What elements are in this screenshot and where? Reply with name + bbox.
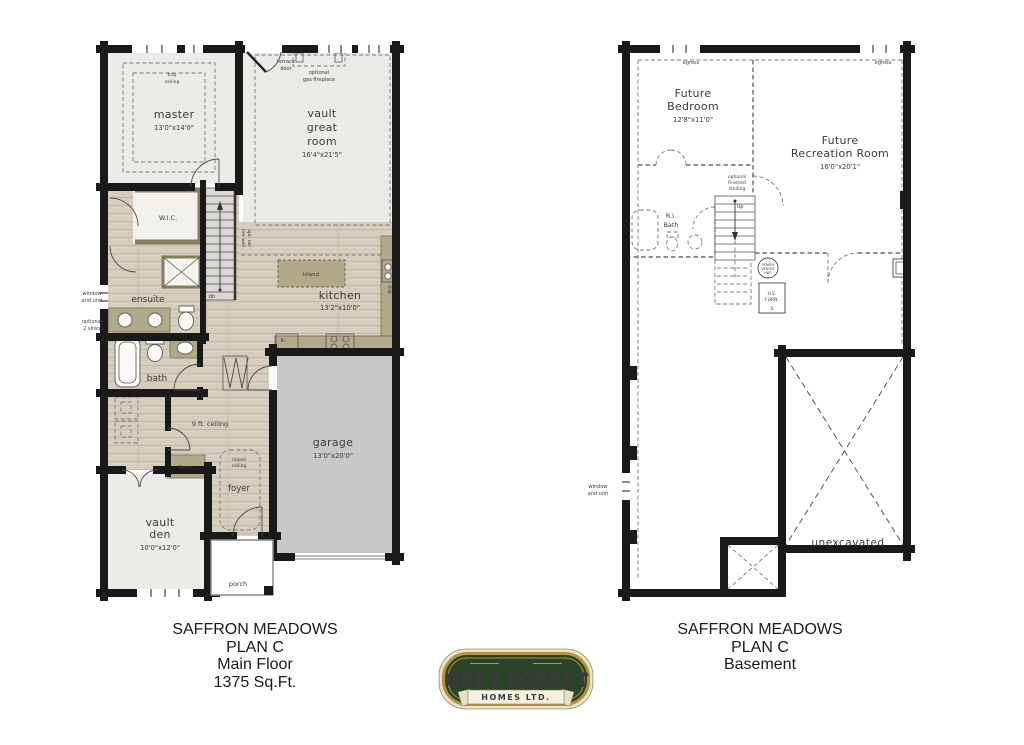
rec-door-dashed [828,253,858,283]
ensuite-label: ensuite [131,295,165,305]
future-bedroom-label-1: Future [675,87,712,100]
porch-label: porch [229,580,247,588]
main-floor-title-block: SAFFRON MEADOWS PLAN C Main Floor 1375 S… [148,621,362,691]
terrace-door-opening [245,45,282,53]
stairs-down [205,188,235,300]
ri-toilet-tank [667,232,678,237]
stairs-dn-label: dn [209,294,216,300]
opt-sinks-note-2: 2 sinks [83,326,101,332]
wall-pilaster-2 [630,446,637,460]
hwt-label-3: HWT [764,271,772,275]
garage-dims: 13'0"x20'0" [313,452,353,460]
unexcavated-x [786,357,903,545]
ceiling-9ft-note: 9 ft. ceiling [192,420,228,428]
ensuite-toilet-tank [179,306,194,312]
bath-label: bath [147,374,167,384]
master-label: master [154,108,195,121]
opt-sinks-note-1: optional [82,319,102,325]
basement-porch-walls [724,541,782,593]
wic-label: W.I.C. [159,214,177,222]
bath-sink [177,342,193,354]
dishwasher-label: D.W. [387,285,392,294]
raised-ceiling-note-2: ceiling [232,463,247,469]
terrace-door-label-2: door [280,66,292,72]
landing-note-2: finished [728,180,746,186]
landing-treads [717,268,749,292]
ri-sink [688,235,702,249]
rec-room-dims: 16'0"x20'1" [820,163,860,171]
rail-note-2: opt. rail [246,229,252,246]
logo-name-text: GREY FOREST [444,670,587,691]
ensuite-toilet [179,312,194,330]
tray-ceiling-label-2: ceiling [165,79,180,85]
terrace-door-label-1: terrace [277,59,295,65]
mechanical [758,258,909,313]
bath-door-swing-dashed [693,207,715,229]
logo-est-text: Est 1990 [498,660,533,669]
raised-ceiling-note-1: raised [232,457,246,463]
landing-outline [715,260,751,304]
stairs-up [715,196,755,304]
porch-post [264,586,273,595]
foyer-label: foyer [228,484,250,494]
wall-pilaster-3 [630,530,637,544]
bedroom-door-swing-dashed [753,176,783,206]
window-unit-note-2: and unit [82,298,103,304]
master-window [132,45,177,53]
great-room-window-2 [358,45,390,53]
linen-label: linen [179,465,193,471]
basement-title-line-1: SAFFRON MEADOWS [653,621,867,639]
furnace-label-2: FURN. [765,297,779,303]
kitchen-sink-2 [385,273,391,279]
fireplace-label-2: gas fireplace [303,77,335,83]
garage-mandoor-opening [269,366,277,390]
fireplace-label-1: optional [309,70,329,76]
great-room-dims: 16'4"x21'5" [302,151,342,159]
window-unit-note-1: window [589,484,608,490]
ensuite-sink-2 [148,313,162,327]
ri-bath-label-2: Bath [663,221,678,229]
ensuite-sink-1 [118,313,132,327]
bath-toilet [148,345,163,362]
main-title-line-4: 1375 Sq.Ft. [148,674,362,692]
den-dims: 10'0"x12'0" [140,544,180,552]
main-title-line-1: SAFFRON MEADOWS [148,621,362,639]
future-partitions [626,60,903,283]
landing-note-3: landing [729,186,746,192]
insulation-lines [638,60,902,578]
floor-plan-sheet: tray ceiling master 13'0"x14'0" terrace … [0,0,1024,745]
basement-plan: egress egress Future Bedroom 12'8"x11'0"… [582,38,932,628]
great-room-label-3: room [307,135,337,148]
garage-label: garage [313,436,354,449]
egress-window-left [660,45,700,53]
rec-room-label-1: Future [822,134,859,147]
walls [622,45,911,597]
ri-bath-label-1: R.I. [666,212,676,220]
window-unit-note-1: window [83,291,102,297]
great-room-label-2: great [307,121,338,134]
window-unit-note-2: and unit [588,491,609,497]
ri-tub [632,210,658,250]
range-label: R. [281,338,286,344]
egress-label-left: egress [683,60,700,66]
furnace-label-1: H.E. [767,291,776,297]
main-title-line-2: PLAN C [148,639,362,657]
den-label-2: den [149,528,171,541]
basement-labels: egress egress Future Bedroom 12'8"x11'0"… [588,60,892,549]
egress-window-right [860,45,900,53]
basement-title-line-2: PLAN C [653,639,867,657]
furnace-label-3: S [771,306,774,312]
rec-room-label-2: Recreation Room [791,147,889,160]
great-room-label-1: vault [307,107,336,120]
ensuite-window [100,285,108,309]
island-label: island [303,272,319,278]
logo-subtitle-text: HOMES LTD. [481,693,550,702]
foyer-wood-floor [204,470,273,536]
wall-pilaster-4 [900,191,907,209]
future-bedroom-dims: 12'8"x11'0" [673,116,713,124]
landing-note-1: optional [728,174,746,180]
great-room-window-1 [318,45,352,53]
future-bedroom-label-2: Bedroom [667,100,719,113]
wall-pilaster-1 [630,366,637,380]
tray-ceiling-label-1: tray [167,72,176,78]
basement-title-line-3: Basement [653,656,867,674]
unexcavated-label: unexcavated [811,537,884,549]
garage-door-opening [295,553,385,561]
grey-forest-logo: Est 1990 GREY FOREST GREY FOREST HOMES L… [438,646,594,712]
kitchen-label: kitchen [319,289,362,302]
egress-label-right: egress [875,60,892,66]
basement-window [622,473,630,500]
ri-toilet [667,237,678,251]
rail-note-1: low wall [240,229,246,247]
kitchen-sink-1 [385,264,391,270]
kitchen-dims: 13'2"x10'0" [320,304,360,312]
main-title-line-3: Main Floor [148,656,362,674]
bedroom-double-door-dashed [656,150,686,165]
basement-title-block: SAFFRON MEADOWS PLAN C Basement [653,621,867,674]
main-floor-plan: tray ceiling master 13'0"x14'0" terrace … [78,38,408,628]
stairs-up-label: Up [737,204,744,210]
master-dims: 13'0"x14'0" [154,124,194,132]
